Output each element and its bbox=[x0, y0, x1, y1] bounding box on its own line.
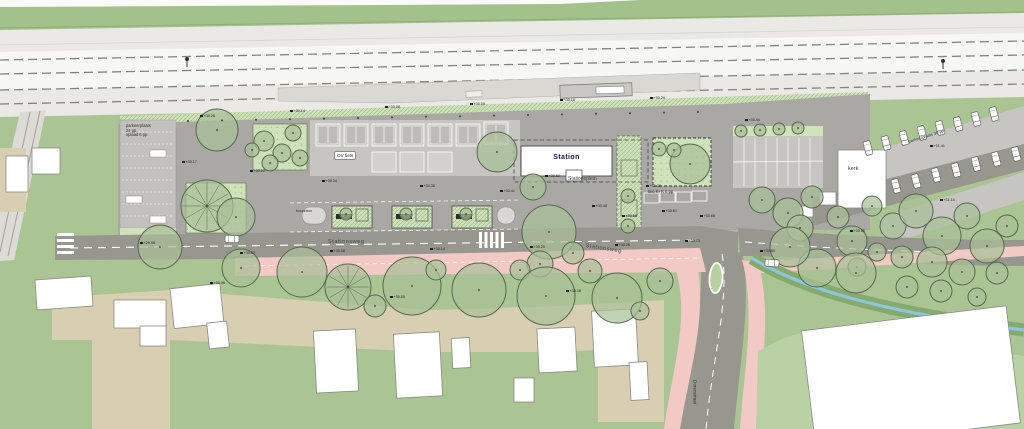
large-building-southeast bbox=[802, 306, 1021, 429]
tree bbox=[667, 143, 681, 157]
bollard-dot bbox=[663, 112, 665, 114]
tree bbox=[996, 215, 1018, 237]
bollard-dot bbox=[561, 113, 563, 115]
tree bbox=[217, 198, 255, 236]
car bbox=[225, 235, 239, 242]
tree bbox=[891, 246, 913, 268]
tree bbox=[621, 219, 635, 233]
tree bbox=[917, 247, 947, 277]
tree bbox=[773, 123, 785, 135]
tree bbox=[245, 143, 259, 157]
tree bbox=[631, 302, 649, 320]
tree bbox=[801, 186, 823, 208]
bollard-dot bbox=[629, 112, 631, 114]
bollard-dot bbox=[391, 116, 393, 118]
bollard-dot bbox=[323, 118, 325, 120]
tree bbox=[222, 249, 260, 287]
car bbox=[765, 259, 779, 267]
site-plan-drawing bbox=[0, 0, 1024, 429]
tree bbox=[138, 225, 182, 269]
bollard-dot bbox=[425, 116, 427, 118]
tree bbox=[262, 155, 278, 171]
tree bbox=[949, 259, 975, 285]
tree bbox=[364, 295, 386, 317]
tree bbox=[578, 259, 602, 283]
tree bbox=[968, 288, 986, 306]
platform-structure bbox=[466, 91, 482, 98]
bollard-dot bbox=[595, 113, 597, 115]
tree bbox=[986, 262, 1008, 284]
tree bbox=[792, 122, 804, 134]
station-entrance bbox=[566, 170, 582, 181]
tree bbox=[196, 109, 238, 151]
tree bbox=[735, 125, 747, 137]
tree bbox=[285, 125, 301, 141]
bollard-dot bbox=[187, 120, 189, 122]
tree bbox=[896, 276, 918, 298]
bollard-dot bbox=[527, 114, 529, 116]
tree bbox=[400, 208, 412, 220]
tree bbox=[930, 280, 952, 302]
tree bbox=[562, 242, 584, 264]
tree bbox=[520, 174, 546, 200]
tree bbox=[837, 226, 867, 256]
tree bbox=[517, 267, 575, 325]
bollard-dot bbox=[493, 115, 495, 117]
tree bbox=[749, 187, 775, 213]
tree bbox=[836, 253, 876, 293]
tree bbox=[460, 208, 472, 220]
tree bbox=[340, 208, 352, 220]
site-plan-stage: parkeerplaats 24 pp oplaad 6 pp OV fiets… bbox=[0, 0, 1024, 429]
bollard-dot bbox=[221, 119, 223, 121]
tree bbox=[868, 243, 886, 261]
tree bbox=[647, 268, 673, 294]
bollard-dot bbox=[357, 117, 359, 119]
tree bbox=[954, 203, 980, 229]
tree bbox=[277, 247, 327, 297]
west-parking-strip bbox=[120, 120, 176, 228]
tree bbox=[754, 124, 766, 136]
tree bbox=[862, 196, 882, 216]
tree bbox=[652, 142, 666, 156]
tree bbox=[621, 189, 635, 203]
tree bbox=[827, 206, 849, 228]
tree bbox=[292, 150, 308, 166]
tree bbox=[426, 260, 446, 280]
bollard-dot bbox=[255, 119, 257, 121]
bollard-dot bbox=[459, 115, 461, 117]
bollard-dot bbox=[289, 118, 291, 120]
tree bbox=[452, 263, 506, 317]
tree bbox=[477, 132, 517, 172]
bollard-dot bbox=[697, 111, 699, 113]
platform-shelter bbox=[560, 83, 632, 99]
